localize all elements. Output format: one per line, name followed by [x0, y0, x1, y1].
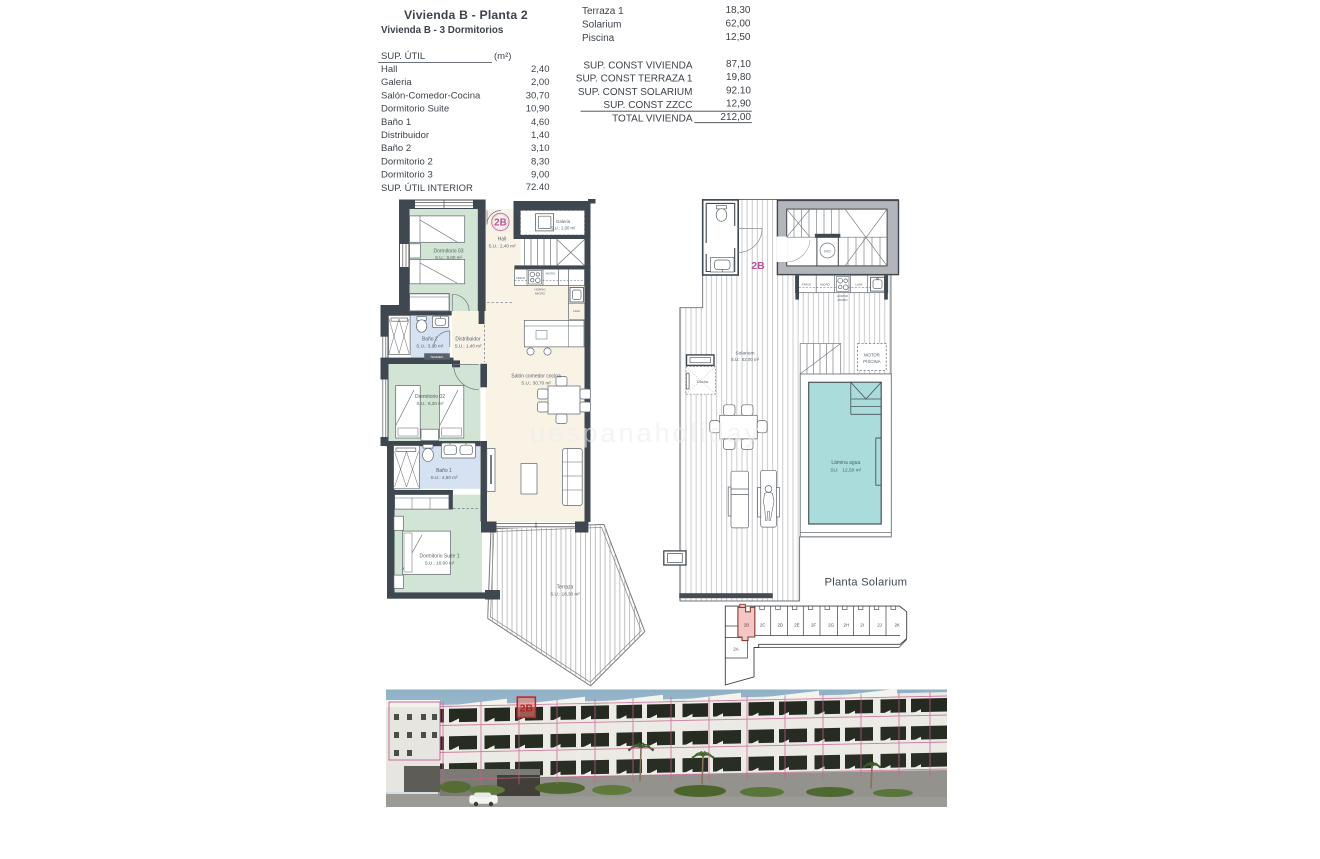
- svg-text:Galeria: Galeria: [556, 219, 571, 224]
- svg-text:3,10: 3,10: [531, 143, 550, 154]
- svg-text:MICRO: MICRO: [535, 292, 546, 296]
- svg-text:2,00: 2,00: [531, 77, 550, 88]
- svg-text:12,50: 12,50: [725, 32, 750, 43]
- svg-text:Baño 1: Baño 1: [436, 468, 452, 474]
- svg-text:Salón-Comedor-Cocina: Salón-Comedor-Cocina: [381, 90, 481, 101]
- svg-text:Distribuidor: Distribuidor: [381, 130, 429, 141]
- svg-text:2F: 2F: [811, 623, 816, 628]
- svg-text:TENDED.: TENDED.: [430, 355, 443, 359]
- svg-text:Baño 2: Baño 2: [422, 337, 438, 343]
- svg-text:2J: 2J: [877, 623, 882, 628]
- svg-text:S.U.: 30,70 m²: S.U.: 30,70 m²: [521, 381, 551, 386]
- svg-text:Dormitorio 3: Dormitorio 3: [381, 170, 433, 181]
- svg-text:SUP. CONST TERRAZA 1: SUP. CONST TERRAZA 1: [576, 74, 693, 85]
- svg-text:Baño 2: Baño 2: [381, 143, 411, 154]
- svg-text:Dormitorio 2: Dormitorio 2: [381, 156, 433, 167]
- svg-text:Solarium: Solarium: [582, 20, 621, 31]
- svg-text:MICRO: MICRO: [838, 298, 849, 302]
- svg-text:S.U.: 2,40 m²: S.U.: 2,40 m²: [488, 244, 516, 249]
- svg-text:LAVA: LAVA: [573, 309, 580, 313]
- svg-text:19,80: 19,80: [726, 72, 751, 83]
- svg-text:2D: 2D: [777, 623, 783, 628]
- svg-text:SUP. CONST SOLARIUM: SUP. CONST SOLARIUM: [578, 87, 693, 98]
- svg-text:LAVA: LAVA: [856, 283, 863, 287]
- svg-text:SUP. ÚTIL INTERIOR: SUP. ÚTIL INTERIOR: [381, 183, 473, 194]
- svg-text:2G: 2G: [828, 623, 834, 628]
- svg-text:S.U.: 1,40 m²: S.U.: 1,40 m²: [454, 344, 482, 349]
- svg-text:30,70: 30,70: [526, 90, 550, 101]
- svg-text:2I: 2I: [860, 623, 864, 628]
- svg-text:S.U.: 8,30 m²: S.U.: 8,30 m²: [416, 401, 444, 406]
- svg-text:Dormitorio 03: Dormitorio 03: [433, 249, 463, 255]
- svg-text:72.40: 72.40: [526, 182, 550, 193]
- svg-text:2B: 2B: [744, 623, 749, 628]
- svg-text:2,40: 2,40: [531, 64, 550, 75]
- svg-text:2B: 2B: [751, 260, 765, 272]
- svg-text:Piscina: Piscina: [582, 33, 615, 44]
- svg-text:S.U.: 2,00 m²: S.U.: 2,00 m²: [551, 226, 576, 231]
- svg-text:uespanaholiday: uespanaholiday: [530, 418, 761, 448]
- svg-text:2A: 2A: [733, 647, 738, 652]
- svg-text:9,00: 9,00: [531, 170, 550, 181]
- svg-text:FRIGO: FRIGO: [516, 276, 526, 280]
- svg-text:Terraza 1: Terraza 1: [582, 6, 624, 17]
- svg-text:S.U.: 18,30 m²: S.U.: 18,30 m²: [550, 591, 580, 596]
- svg-text:SUP. CONST VIVIENDA: SUP. CONST VIVIENDA: [583, 61, 692, 72]
- svg-text:S.U.: 4,60 m²: S.U.: 4,60 m²: [430, 475, 458, 480]
- svg-text:Hall: Hall: [498, 237, 507, 243]
- svg-text:12,90: 12,90: [726, 99, 751, 110]
- svg-text:S.U.: 10,90 m²: S.U.: 10,90 m²: [425, 560, 455, 565]
- svg-text:(m²): (m²): [494, 51, 511, 62]
- svg-text:Vivienda B - 3 Dormitorios: Vivienda B - 3 Dormitorios: [381, 25, 504, 36]
- svg-text:2C: 2C: [760, 623, 766, 628]
- svg-text:2E: 2E: [794, 623, 799, 628]
- svg-text:Dormitorio Suite: Dormitorio Suite: [381, 104, 449, 115]
- svg-text:FRIGO: FRIGO: [802, 283, 812, 287]
- svg-text:2K: 2K: [895, 623, 900, 628]
- svg-text:Dormitorio Suite 1: Dormitorio Suite 1: [419, 554, 459, 560]
- svg-text:92.10: 92.10: [726, 85, 751, 96]
- svg-text:Lámina agua: Lámina agua: [831, 460, 860, 466]
- svg-text:4,60: 4,60: [531, 117, 550, 128]
- svg-text:MOTOR: MOTOR: [864, 353, 880, 358]
- svg-text:2H: 2H: [844, 623, 850, 628]
- svg-text:SUP. CONST ZZCC: SUP. CONST ZZCC: [603, 100, 692, 111]
- svg-text:Hall: Hall: [381, 64, 397, 75]
- svg-text:MO: MO: [824, 249, 830, 254]
- svg-text:Distribuidor: Distribuidor: [455, 337, 481, 343]
- svg-text:1,40: 1,40: [531, 130, 550, 141]
- svg-text:Dormitorio 02: Dormitorio 02: [415, 394, 445, 400]
- svg-text:TOTAL VIVIENDA: TOTAL VIVIENDA: [612, 113, 693, 124]
- svg-text:SUP. ÚTIL: SUP. ÚTIL: [381, 51, 425, 62]
- svg-text:MICRO: MICRO: [546, 272, 556, 276]
- svg-text:62,00: 62,00: [725, 19, 750, 30]
- svg-text:Ducha: Ducha: [697, 380, 709, 384]
- svg-text:Baño 1: Baño 1: [381, 117, 411, 128]
- svg-text:Terraza: Terraza: [557, 585, 574, 591]
- svg-text:87,10: 87,10: [726, 59, 751, 70]
- svg-text:2B: 2B: [520, 703, 534, 715]
- svg-text:Solarium: Solarium: [736, 351, 755, 357]
- svg-text:S.U.: 62,00 m²: S.U.: 62,00 m²: [731, 357, 760, 362]
- svg-text:MICRO: MICRO: [820, 283, 830, 287]
- svg-text:8,30: 8,30: [531, 156, 550, 167]
- svg-text:S.U.: 3,10 m²: S.U.: 3,10 m²: [416, 344, 444, 349]
- svg-text:Galeria: Galeria: [381, 77, 412, 88]
- svg-text:S.U.: 9,00 m²: S.U.: 9,00 m²: [435, 255, 463, 260]
- svg-text:PISCINA: PISCINA: [863, 359, 880, 364]
- svg-text:Vivienda B - Planta 2: Vivienda B - Planta 2: [404, 8, 528, 22]
- svg-text:212,00: 212,00: [720, 112, 751, 123]
- svg-text:Planta Solarium: Planta Solarium: [825, 577, 908, 589]
- svg-text:2B: 2B: [494, 217, 507, 228]
- svg-text:10,90: 10,90: [526, 104, 550, 115]
- svg-text:18,30: 18,30: [725, 5, 750, 16]
- svg-text:Salón comedor cocina: Salón comedor cocina: [511, 374, 561, 380]
- svg-text:SU: 12,50 m²: SU: 12,50 m²: [830, 468, 861, 474]
